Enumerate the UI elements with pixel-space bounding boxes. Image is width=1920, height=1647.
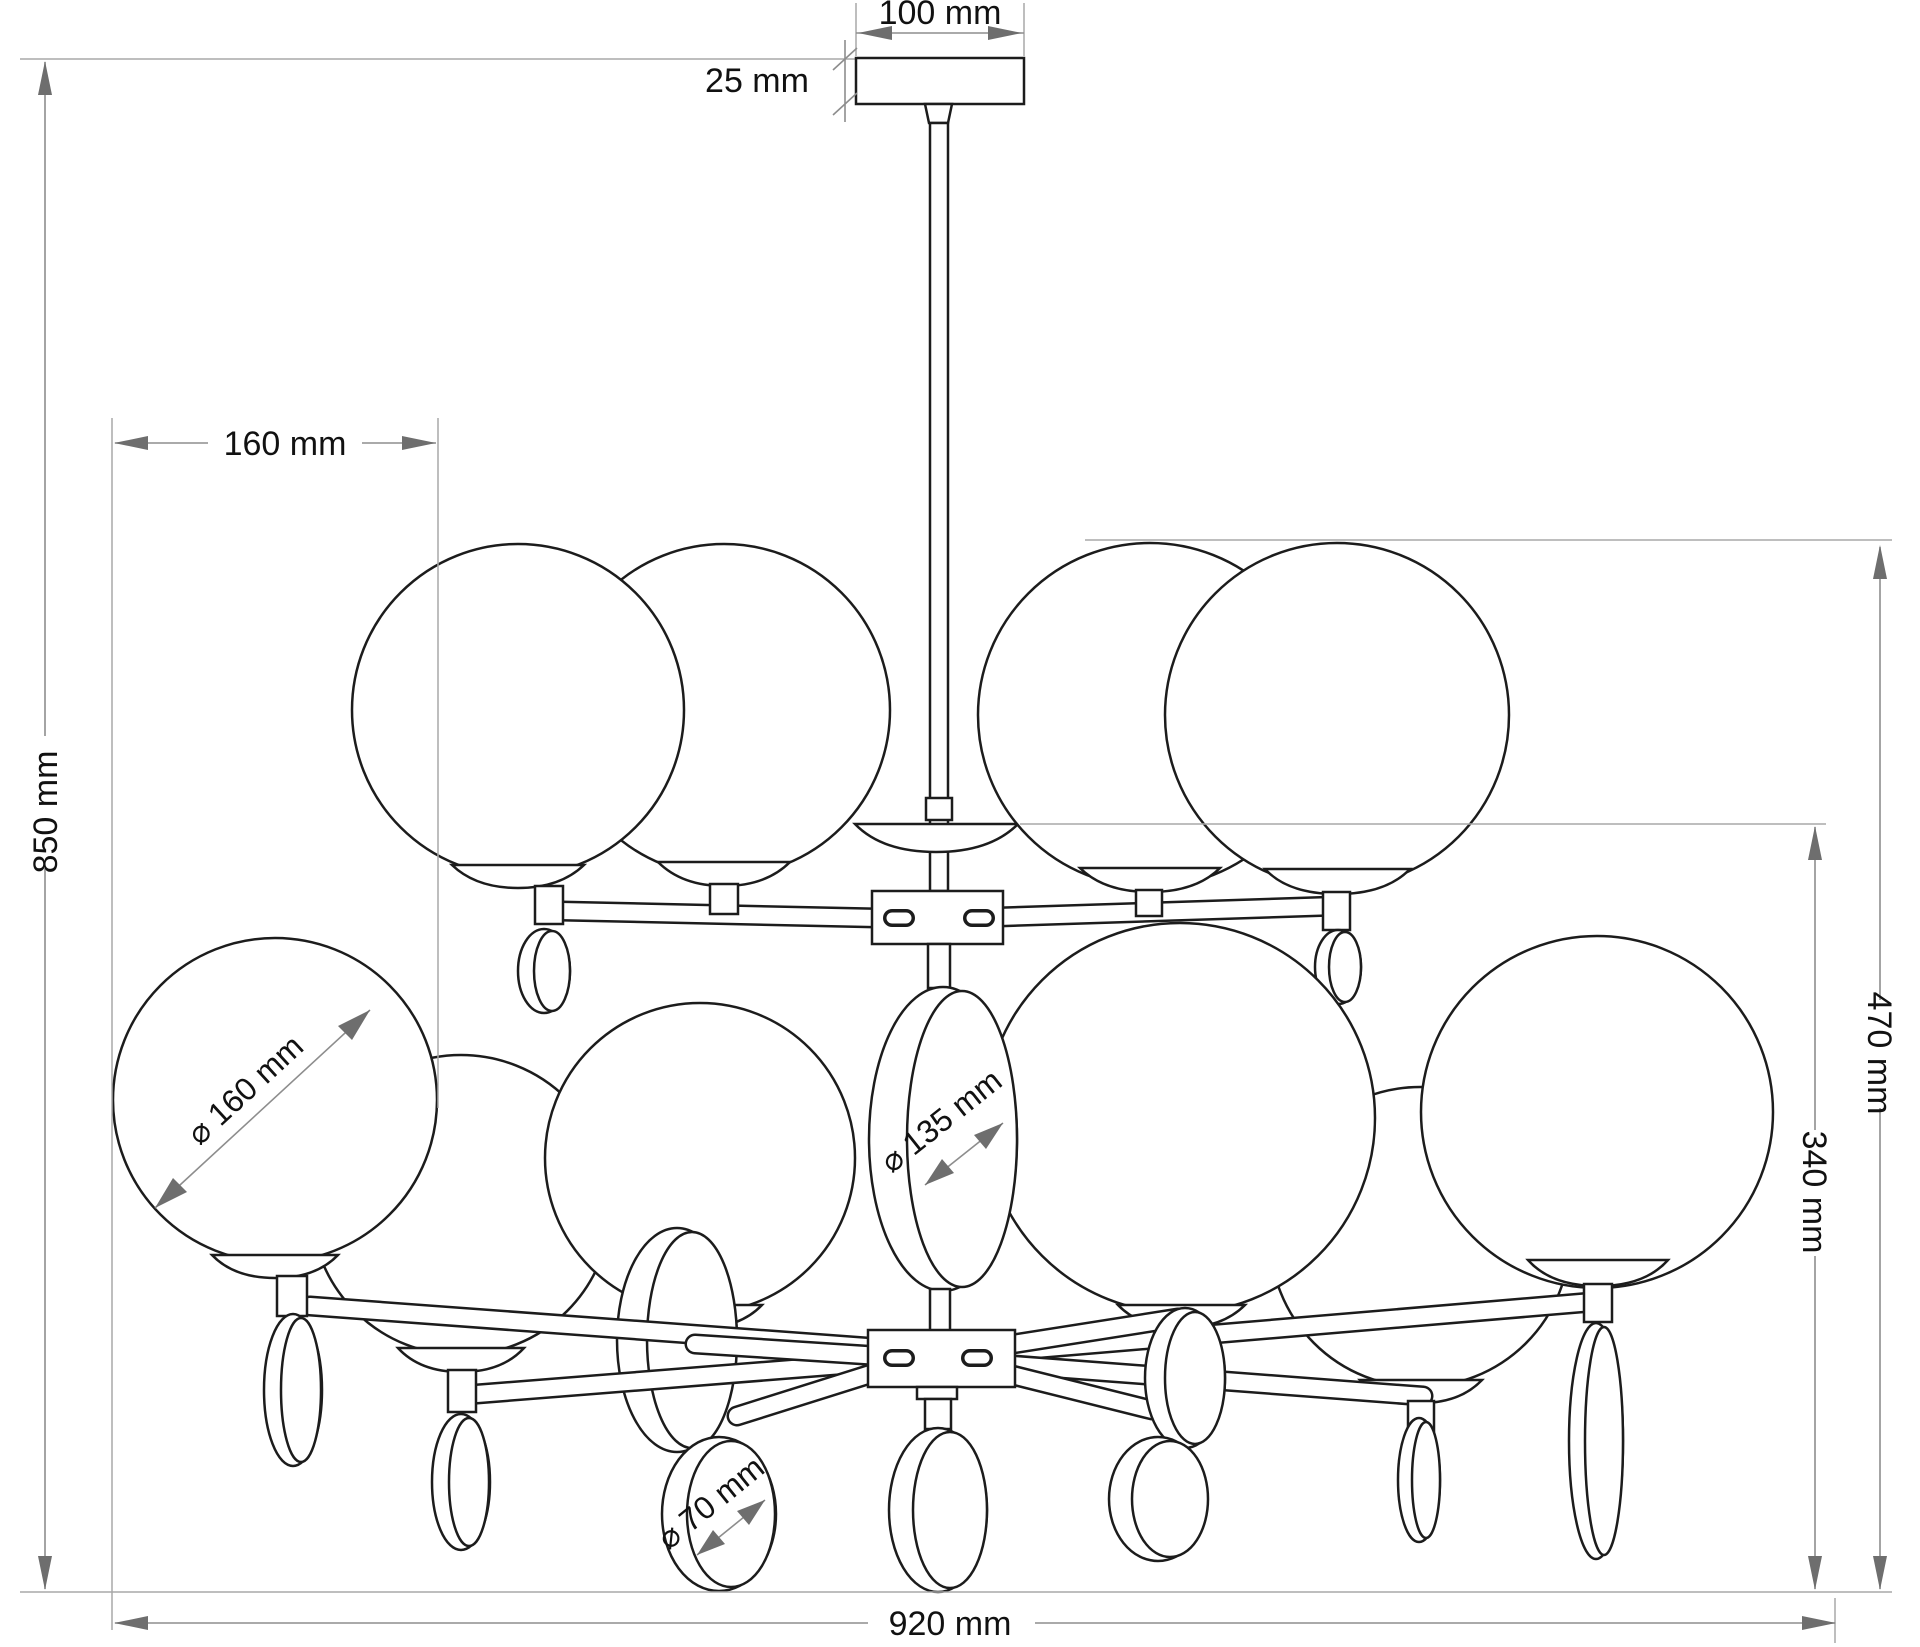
dim-canopy-width: 100 mm [856, 0, 1024, 40]
stem-below-upper-hub [928, 944, 950, 988]
saucer-upper-left-rear [658, 862, 790, 886]
stem-upper-right-rear [1136, 890, 1162, 916]
dim-overall-height: 850 mm [27, 61, 65, 1590]
disc-right-lower [1109, 1437, 1208, 1561]
stem-upper-left-rear [710, 884, 738, 914]
globe-upper-right-front [1165, 543, 1509, 887]
stem-bottom-center [925, 1399, 951, 1429]
dim-body-height: 470 mm [1860, 545, 1898, 1590]
drawing-canvas: 100 mm 25 mm 160 mm 850 mm 470 mm [0, 0, 1920, 1647]
disc-bottom-right-rear [1398, 1418, 1440, 1542]
saucer-upper-right-rear [1080, 868, 1220, 892]
disc-right-large [1145, 1308, 1225, 1448]
canopy [856, 58, 1024, 104]
globe-lower-far-left [113, 938, 437, 1262]
lower-hub-neck [917, 1387, 957, 1399]
arm-lower-left-center [695, 1344, 880, 1356]
rod-collar [926, 798, 952, 820]
disc-bottom-far-left [264, 1314, 322, 1466]
globe-lower-right-center [985, 923, 1375, 1313]
disc-upper-left [518, 929, 570, 1013]
rod-dish [855, 824, 1018, 852]
saucer-upper-right-front [1265, 869, 1410, 894]
stem-lower-left-rear [448, 1370, 476, 1412]
disc-bottom-center [889, 1428, 987, 1592]
chandelier-dimension-drawing: 100 mm 25 mm 160 mm 850 mm 470 mm [0, 0, 1920, 1647]
label-overall-height: 850 mm [27, 751, 65, 874]
globe-upper-left-front [352, 544, 684, 876]
disc-bottom-far-right [1569, 1323, 1623, 1559]
label-canopy-width: 100 mm [879, 0, 1002, 32]
globe-lower-far-right [1421, 936, 1773, 1288]
stem-lower-far-right [1584, 1284, 1612, 1322]
canopy-neck [925, 104, 952, 123]
label-body-height: 470 mm [1860, 992, 1898, 1115]
label-overall-width: 920 mm [889, 1605, 1012, 1643]
label-globe-pitch: 160 mm [224, 425, 347, 463]
saucer-lower-far-left [212, 1255, 338, 1278]
stem-lower-far-left [277, 1276, 307, 1316]
dim-canopy-height: 25 mm [705, 40, 857, 122]
saucer-upper-left-front [452, 865, 584, 888]
dim-overall-width: 920 mm [114, 1605, 1836, 1643]
dim-globe-pitch: 160 mm [114, 425, 436, 463]
disc-bottom-left [432, 1414, 490, 1550]
label-canopy-height: 25 mm [705, 62, 809, 100]
stem-upper-left-front [535, 886, 563, 924]
stem-below-disc [930, 1289, 950, 1331]
rod [930, 123, 948, 891]
saucer-lower-left-rear [398, 1348, 524, 1372]
stem-upper-right-front [1323, 892, 1350, 930]
dim-lower-tier-height: 340 mm [1795, 826, 1833, 1590]
label-lower-tier-height: 340 mm [1795, 1131, 1833, 1254]
arm-upper-right [998, 906, 1336, 917]
